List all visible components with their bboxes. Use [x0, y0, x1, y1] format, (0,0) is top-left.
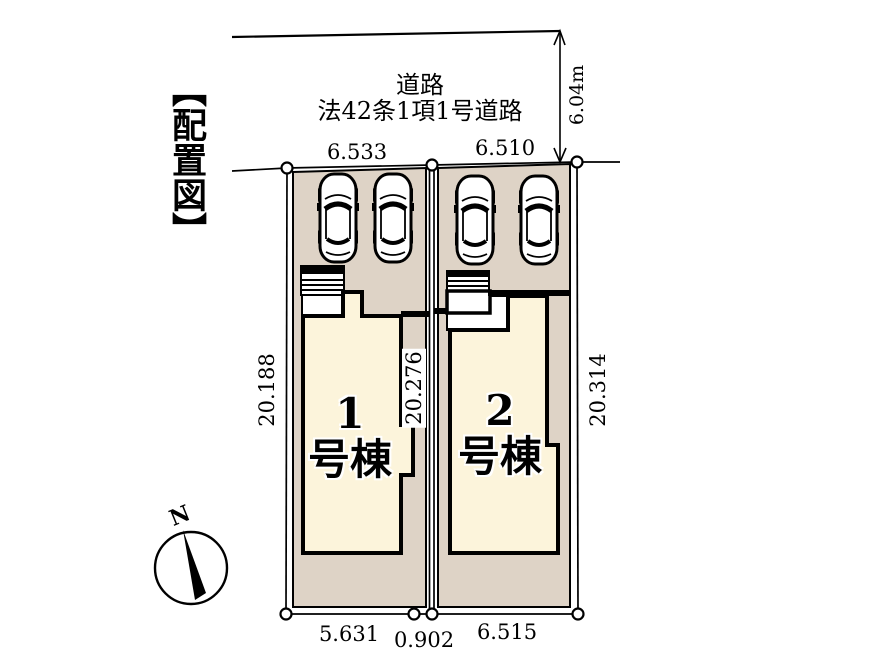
dimension-lot2-bottom: 6.515 — [477, 620, 537, 644]
fence-line-lot2-left — [434, 308, 447, 314]
fence-line-lot1 — [401, 311, 430, 317]
building-2-suffix: 号棟 — [458, 434, 542, 480]
dimension-gap-bottom: 0.902 — [394, 628, 454, 652]
compass-icon — [155, 530, 227, 604]
site-plan: 【配置図】 道路 法42条1項1号道路 6.04m 6.533 6.510 20… — [0, 0, 877, 658]
fence-line-lot2-top — [488, 290, 571, 296]
road-name-label: 道路 — [396, 72, 444, 98]
dimension-lot2-top: 6.510 — [475, 136, 535, 160]
building-1-label: 1 号棟 — [308, 391, 392, 483]
road-width-dim-line — [554, 31, 566, 162]
stairs-icon-lot1 — [301, 266, 344, 295]
car-icon-3 — [453, 176, 497, 264]
building-2-number: 2 — [458, 388, 542, 434]
building-2-label: 2 号棟 — [458, 388, 542, 480]
car-icon-4 — [517, 176, 561, 264]
building-1-suffix: 号棟 — [308, 437, 392, 483]
dimension-lot1-right: 20.276 — [402, 348, 426, 427]
car-icon-2 — [371, 174, 415, 262]
dimension-lot1-left: 20.188 — [255, 353, 279, 426]
dimension-lot1-bottom: 5.631 — [319, 622, 379, 646]
page-title: 【配置図】 — [163, 72, 209, 242]
building-1-number: 1 — [308, 391, 392, 437]
car-icon-1 — [316, 174, 360, 262]
road-far-edge — [232, 31, 560, 37]
stairs-icon-lot2 — [447, 271, 489, 291]
road-width-dimension: 6.04m — [566, 65, 588, 125]
dimension-lot2-right: 20.314 — [586, 353, 610, 426]
dimension-lot1-top: 6.533 — [327, 140, 387, 164]
road-type-label: 法42条1項1号道路 — [317, 98, 522, 124]
porch-lot2 — [447, 291, 508, 330]
porch-lot1 — [302, 295, 343, 316]
